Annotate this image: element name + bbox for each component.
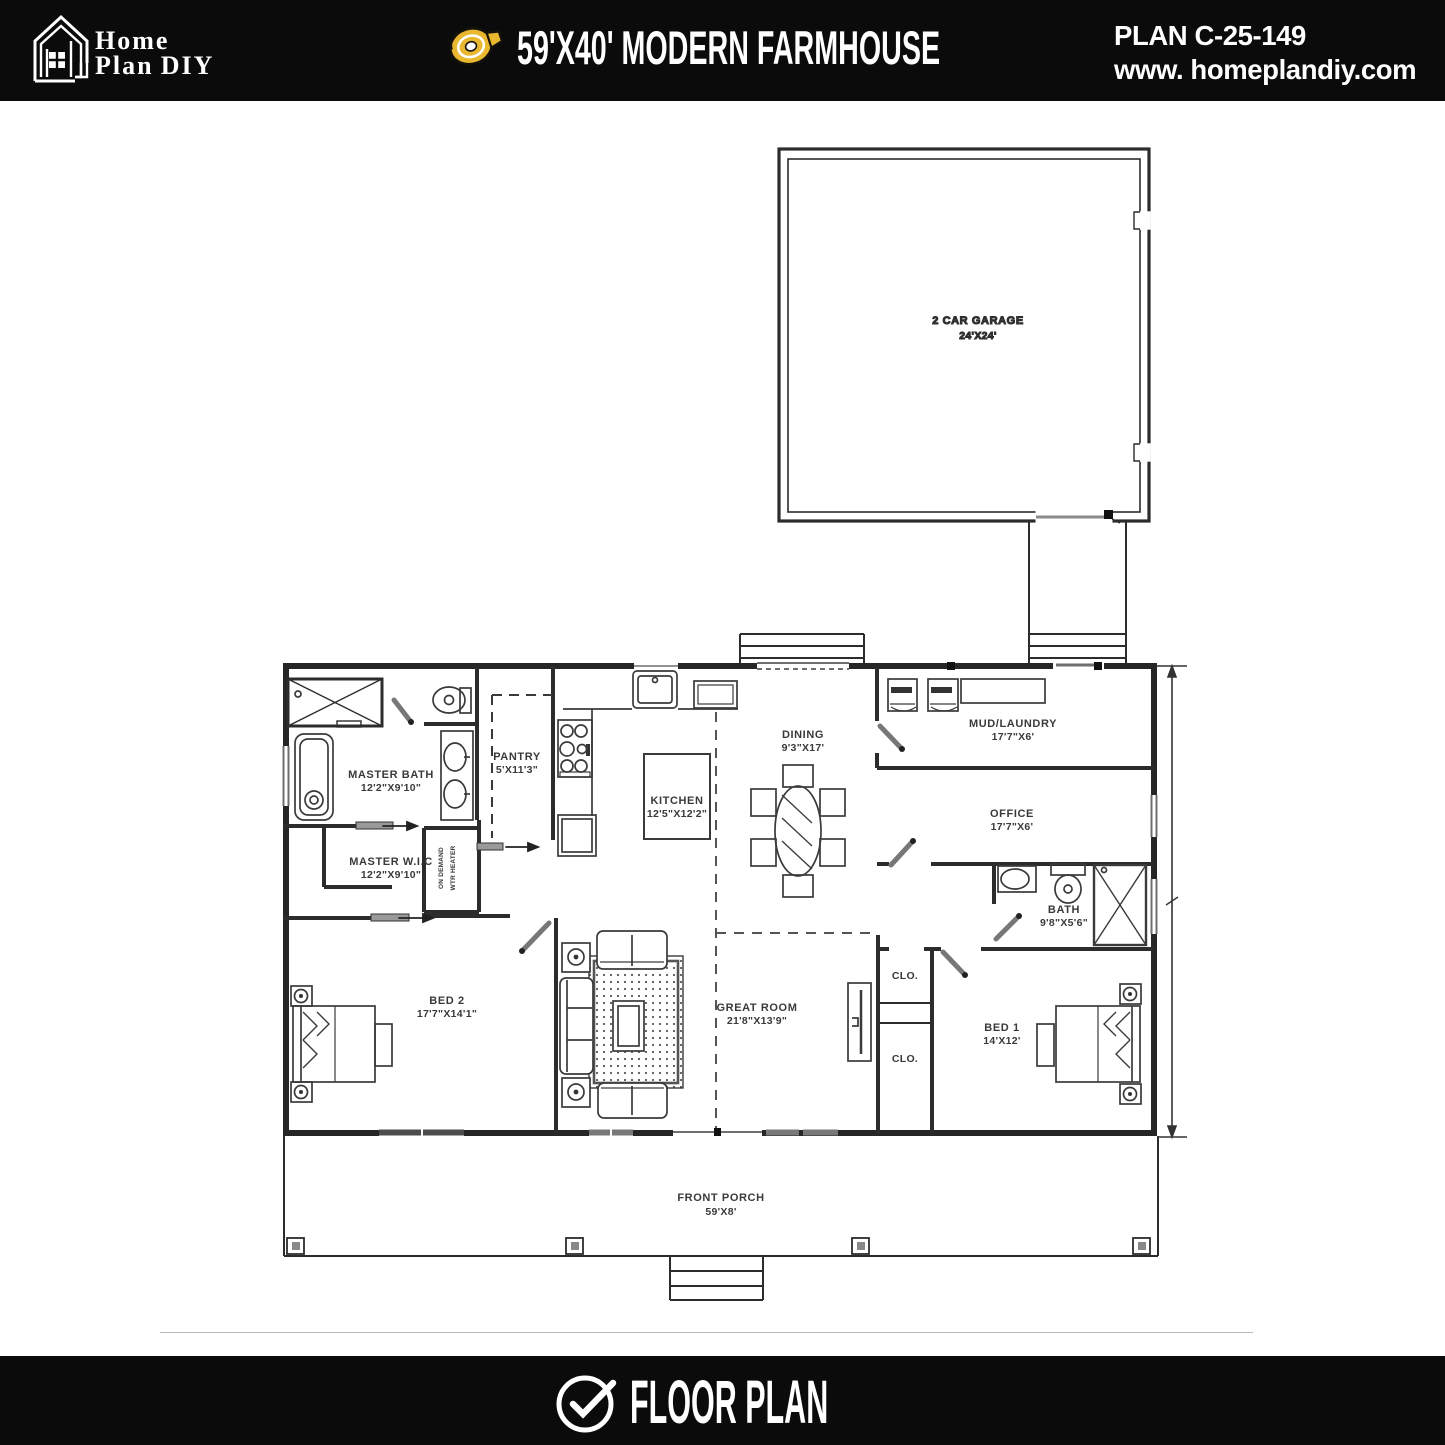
svg-text:17'7"X6': 17'7"X6' [991,821,1034,833]
svg-text:CLO.: CLO. [892,970,918,982]
svg-text:BATH: BATH [1048,904,1080,916]
svg-text:DINING: DINING [782,729,824,741]
svg-text:WTR HEATER: WTR HEATER [450,845,457,890]
svg-text:ON DEMAND: ON DEMAND [438,847,445,889]
svg-text:MASTER W.I.C: MASTER W.I.C [349,856,433,868]
svg-text:9'3"X17': 9'3"X17' [782,742,825,754]
svg-text:5'X11'3": 5'X11'3" [496,764,538,776]
svg-text:12'5"X12'2": 12'5"X12'2" [647,808,707,820]
svg-text:BED 2: BED 2 [429,995,464,1007]
svg-text:PANTRY: PANTRY [493,751,541,763]
svg-text:12'2"X9'10": 12'2"X9'10" [361,869,421,881]
svg-text:17'7"X14'1": 17'7"X14'1" [417,1008,477,1020]
svg-text:59'X8': 59'X8' [705,1206,736,1218]
svg-text:CLO.: CLO. [892,1053,918,1065]
svg-text:12'2"X9'10": 12'2"X9'10" [361,782,421,794]
svg-text:MUD/LAUNDRY: MUD/LAUNDRY [969,718,1057,730]
svg-text:BED 1: BED 1 [984,1022,1019,1034]
svg-text:2 CAR GARAGE: 2 CAR GARAGE [932,315,1024,327]
svg-text:GREAT ROOM: GREAT ROOM [717,1002,798,1014]
svg-text:14'X12': 14'X12' [983,1035,1020,1047]
svg-text:17'7"X6': 17'7"X6' [992,731,1035,743]
svg-text:OFFICE: OFFICE [990,808,1034,820]
svg-text:KITCHEN: KITCHEN [650,795,703,807]
svg-text:MASTER BATH: MASTER BATH [348,769,434,781]
svg-text:24'X24': 24'X24' [959,330,996,342]
svg-text:21'8"X13'9": 21'8"X13'9" [727,1015,787,1027]
svg-text:9'8"X5'6": 9'8"X5'6" [1040,917,1088,929]
svg-text:FRONT PORCH: FRONT PORCH [677,1192,764,1204]
